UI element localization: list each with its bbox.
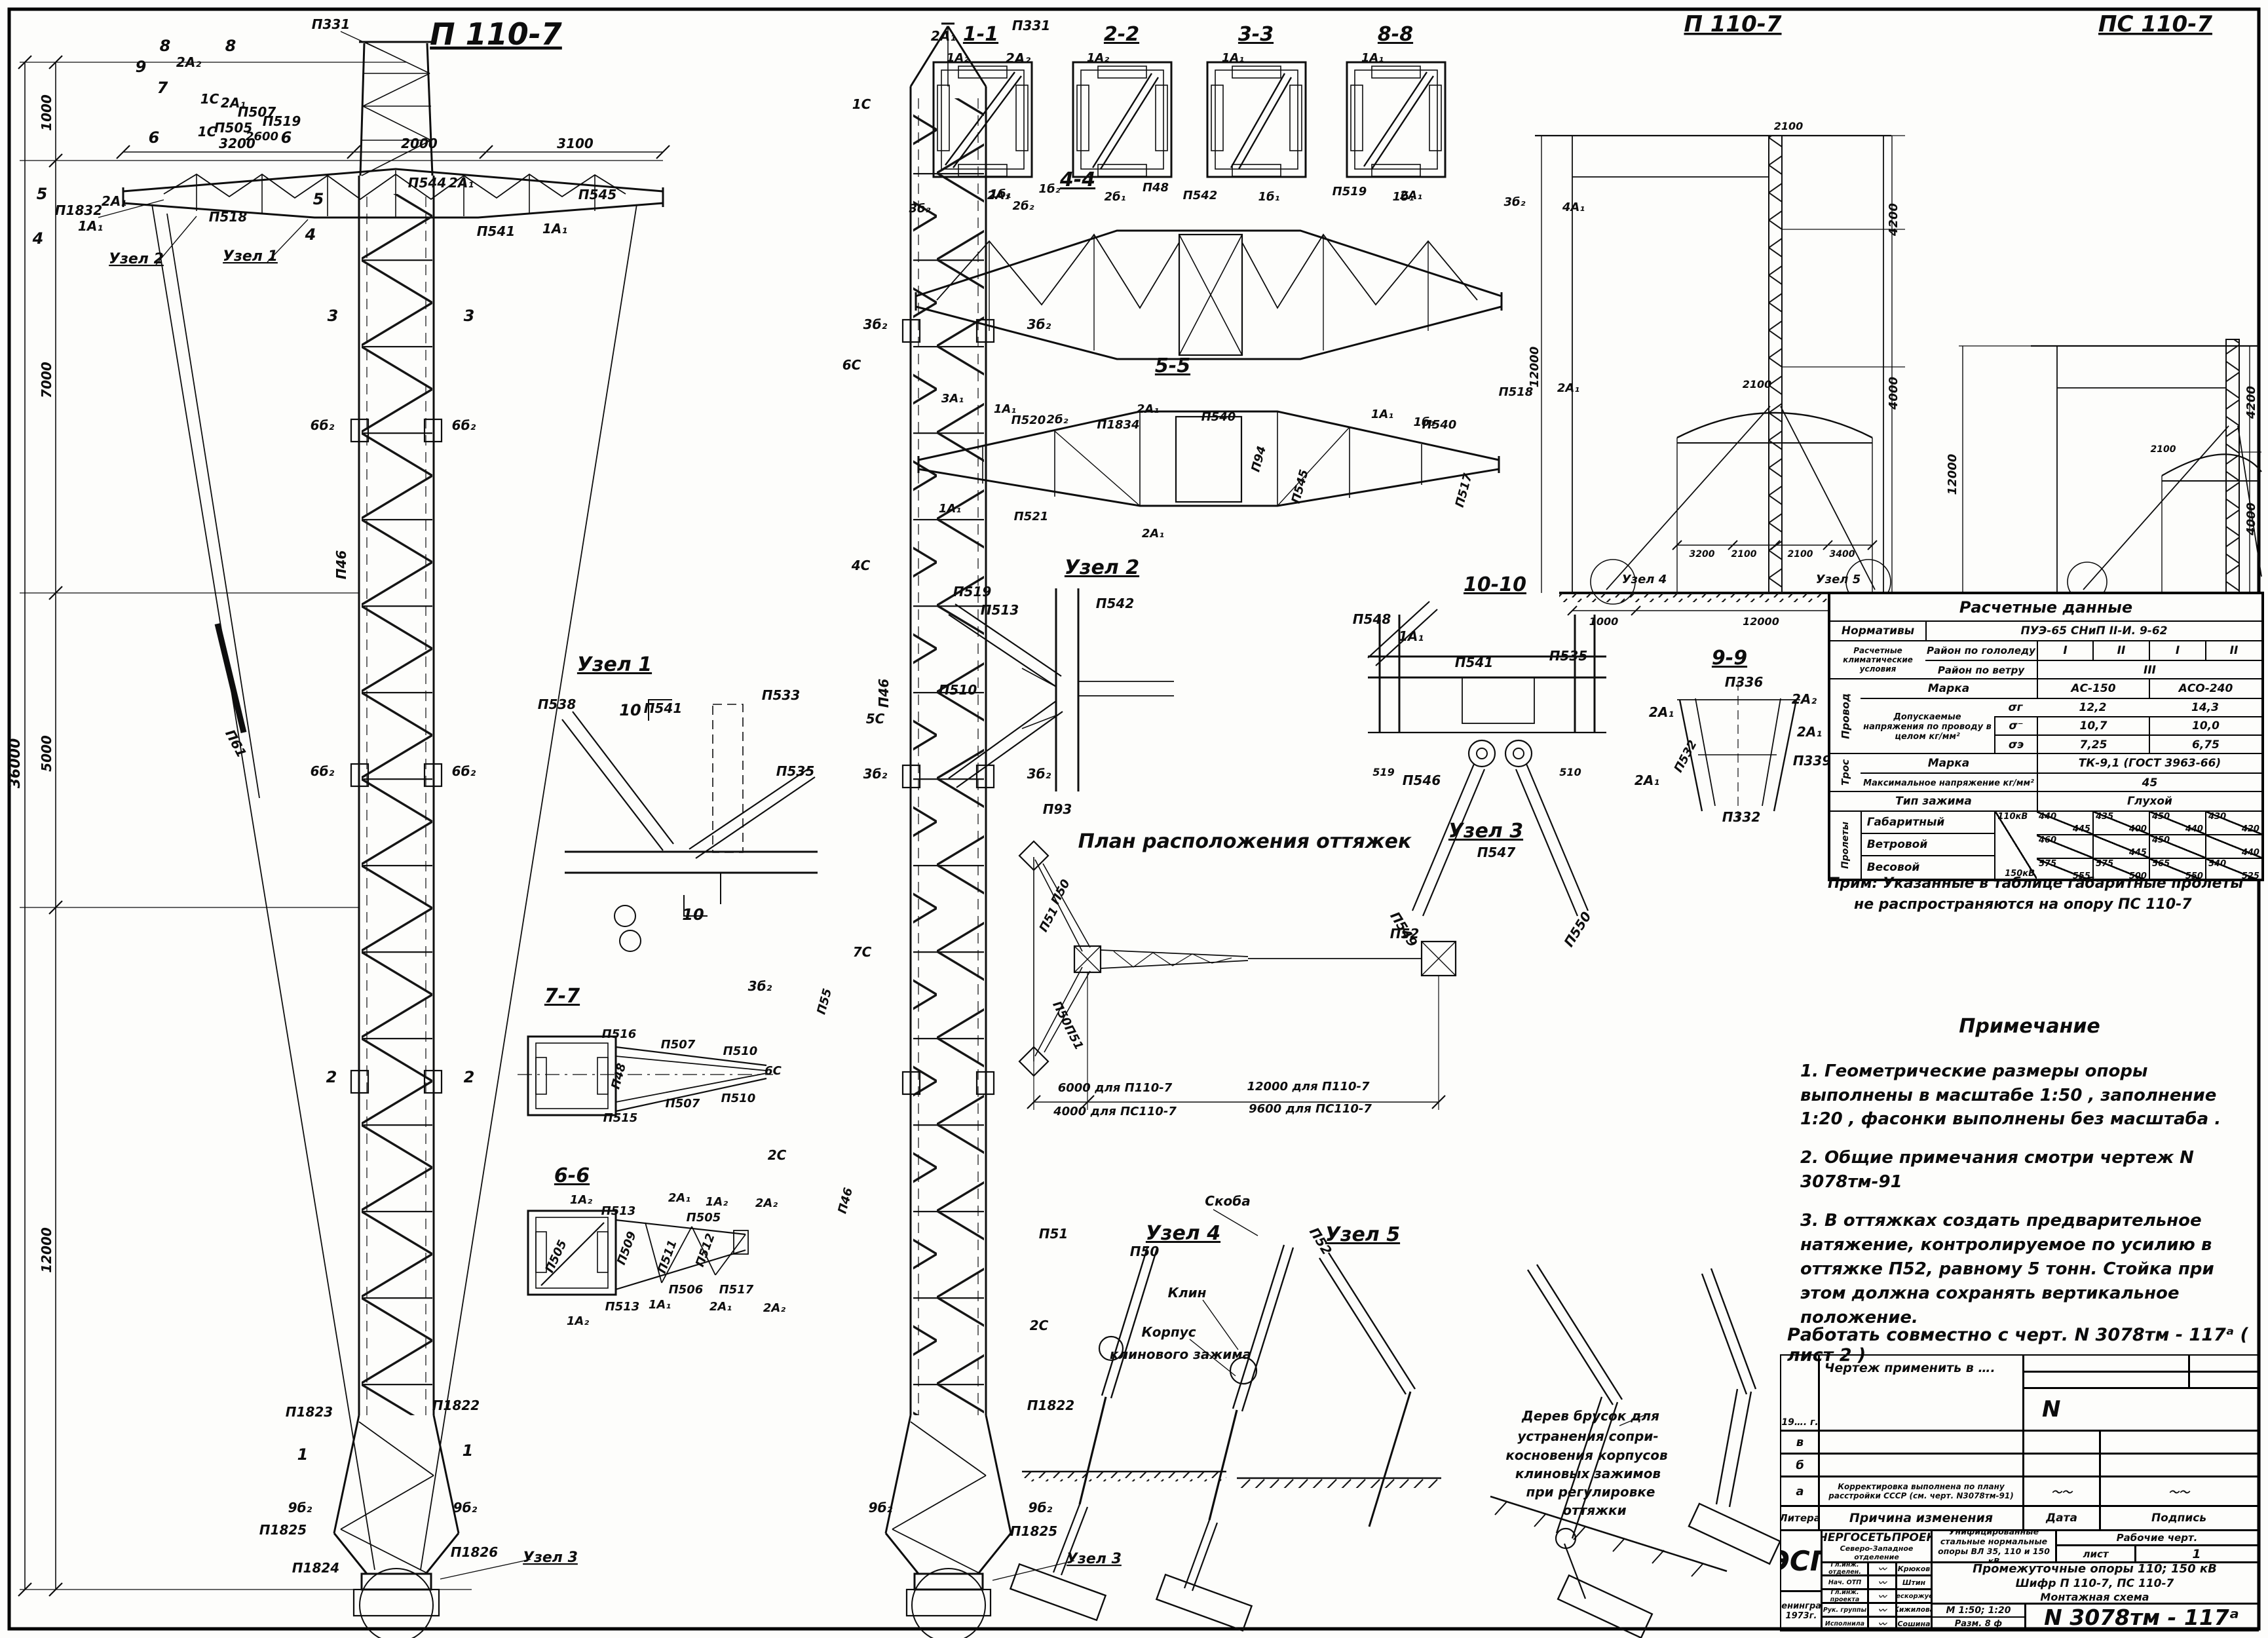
- svg-label: П51: [1061, 1023, 1086, 1052]
- svg-label: П517: [719, 1283, 754, 1297]
- svg-label: 3б₂: [909, 202, 931, 216]
- svg-label: 2А₁: [709, 1300, 732, 1314]
- svg-label: П535: [1549, 648, 1588, 664]
- sigma-label: Допускаемые напряжения по проводу в цело…: [1861, 699, 1994, 754]
- cell: 435: [2096, 812, 2113, 822]
- sheet-label: лист: [2055, 1544, 2136, 1563]
- svg-label: П50: [1130, 1244, 1160, 1259]
- sigma-v: 7,25: [2037, 736, 2149, 754]
- svg-label: П547: [1477, 845, 1516, 860]
- svg-label: 7: [157, 79, 168, 97]
- signer-role: Нач. ОТП: [1821, 1575, 1869, 1590]
- svg-label: 5-5: [1155, 354, 1190, 377]
- svg-label: П94: [1249, 444, 1269, 473]
- year-cell: 19…. г.: [1780, 1354, 1820, 1432]
- svg-label: П510: [723, 1044, 758, 1058]
- row-a: а: [1780, 1476, 1820, 1507]
- svg-label: П1834: [1097, 418, 1139, 432]
- svg-label: 2А₁: [1557, 381, 1579, 395]
- row-a-sign: 〜〜: [2099, 1476, 2259, 1507]
- svg-label: Узел 3: [1067, 1551, 1122, 1567]
- svg-label: 3б₂: [1027, 316, 1051, 332]
- table-note-line2: не распространяются на опору ПС 110-7: [1854, 896, 2192, 913]
- cell: 565: [2152, 859, 2170, 869]
- svg-label: косновения корпусов: [1505, 1447, 1667, 1463]
- svg-label: 6б₂: [311, 417, 335, 433]
- svg-label: 3: [328, 307, 339, 325]
- cell: 445: [2073, 824, 2090, 834]
- org-name: ЭНЕРГОСЕТЬПРОЕКТ: [1821, 1531, 1933, 1544]
- svg-label: 2-2: [1104, 23, 1139, 46]
- svg-label: П540: [1422, 418, 1457, 432]
- svg-label: П1825: [259, 1522, 307, 1538]
- marka-as: АС-150: [2037, 679, 2149, 698]
- svg-label: 36000: [7, 738, 24, 789]
- svg-label: при регулировке: [1526, 1484, 1655, 1500]
- svg-label: П519: [263, 113, 301, 129]
- sign-label: Подпись: [2099, 1505, 2259, 1531]
- prolet-label: Пролеты: [1830, 812, 1861, 879]
- svg-label: П535: [776, 763, 815, 779]
- svg-label: Узел 3: [1448, 820, 1523, 843]
- svg-label: П515: [603, 1111, 638, 1125]
- gololed-4: II: [2205, 641, 2261, 660]
- tb-cell: [2099, 1453, 2259, 1477]
- cell: 445: [2129, 848, 2147, 858]
- svg-label: 1А₁: [1222, 51, 1244, 65]
- table-note-line1: Прим: Указанные в таблице габаритные про…: [1828, 875, 2243, 892]
- svg-label: П46: [835, 1186, 856, 1215]
- signature: 〰: [1867, 1603, 1897, 1617]
- signer-role: Рук. группы: [1821, 1603, 1869, 1617]
- svg-label: П506: [669, 1283, 704, 1297]
- svg-label: 8: [160, 37, 171, 55]
- svg-label: П1822: [432, 1398, 480, 1413]
- svg-label: Корпус: [1141, 1324, 1196, 1340]
- svg-label: ПС 110-7: [2098, 11, 2212, 37]
- cell: 460: [2039, 835, 2056, 845]
- svg-label: 7000: [39, 362, 54, 398]
- svg-label: 6б₂: [452, 417, 476, 433]
- cell: 430: [2208, 812, 2226, 822]
- svg-label: 4: [305, 225, 316, 244]
- cell: 440: [2039, 812, 2056, 822]
- tb-cell: [2022, 1354, 2190, 1373]
- svg-label: 1А₁: [542, 221, 567, 237]
- svg-label: П48: [609, 1061, 629, 1090]
- sigma-v: 14,3: [2149, 699, 2261, 717]
- veter-label: Район по ветру: [1925, 661, 2037, 679]
- svg-label: 2600: [246, 130, 278, 143]
- svg-label: 12000: [39, 1227, 54, 1273]
- svg-label: План расположения оттяжек: [1078, 830, 1412, 853]
- notes-title: Примечание: [1800, 1013, 2259, 1041]
- svg-label: клинового зажима: [1110, 1346, 1251, 1362]
- tb-cell: [2022, 1371, 2190, 1389]
- svg-label: П505: [687, 1211, 721, 1225]
- svg-label: Узел 1: [577, 653, 652, 676]
- svg-label: 2: [464, 1068, 475, 1086]
- svg-label: 3б₂: [1027, 766, 1051, 782]
- signer-name: Штин: [1895, 1575, 1933, 1590]
- svg-label: П51: [1036, 905, 1061, 934]
- tros-marka: ТК-9,1 (ГОСТ 3963-66): [2037, 754, 2261, 772]
- svg-label: П533: [762, 687, 801, 703]
- svg-label: клиновых зажимов: [1515, 1466, 1661, 1481]
- svg-label: 4000: [1887, 377, 1900, 410]
- year2: 1973г.: [1786, 1611, 1817, 1621]
- svg-label: 1А₂: [1087, 51, 1109, 65]
- product-2: Шифр П 110-7, ПС 110-7: [2016, 1577, 2174, 1591]
- provod-label: Провод: [1830, 679, 1861, 753]
- svg-label: 5: [37, 185, 48, 203]
- gololed-label: Район по гололеду: [1925, 641, 2037, 660]
- cell: 525: [2242, 871, 2259, 881]
- svg-label: П1832: [55, 202, 102, 218]
- svg-label: 12000 для П110-7: [1247, 1080, 1370, 1094]
- svg-label: 2100: [1731, 549, 1757, 560]
- svg-label: 3100: [557, 136, 594, 151]
- svg-label: П332: [1722, 809, 1761, 825]
- note-item-2: 2. Общие примечания смотри чертеж N 3078…: [1800, 1146, 2259, 1194]
- svg-label: 4-4: [1059, 168, 1095, 191]
- svg-label: 2А₂: [763, 1301, 785, 1315]
- max-value: 45: [2037, 774, 2261, 792]
- sigma-v: 12,2: [2037, 699, 2149, 717]
- litera-label: Литера: [1780, 1505, 1820, 1531]
- svg-label: 2100: [1743, 378, 1772, 390]
- svg-label: 3б₂: [1504, 195, 1526, 209]
- svg-label: 6С: [842, 357, 861, 373]
- svg-label: 1А₁: [649, 1298, 671, 1312]
- svg-label: П331: [1012, 18, 1051, 33]
- svg-label: 1А₁: [1371, 408, 1393, 421]
- svg-label: П546: [1403, 772, 1441, 788]
- svg-label: П46: [876, 679, 892, 708]
- svg-label: П540: [1201, 410, 1236, 424]
- svg-label: Узел 1: [223, 248, 278, 265]
- svg-label: 4200: [1887, 203, 1900, 237]
- date-label: Дата: [2022, 1505, 2101, 1531]
- tros-marka-label: Марка: [1861, 754, 2037, 772]
- sigma-minus: σ⁻: [1994, 717, 2037, 736]
- svg-label: 2А₁: [668, 1191, 690, 1205]
- svg-label: 3б₂: [863, 316, 888, 332]
- svg-label: 1: [463, 1441, 474, 1460]
- calc-data-table: Расчетные данные Нормативы ПУЭ-65 СНиП I…: [1828, 592, 2264, 881]
- svg-label: 7-7: [544, 985, 580, 1008]
- svg-label: П55: [814, 987, 835, 1016]
- svg-label: П509: [614, 1230, 639, 1267]
- product-cell: Промежуточные опоры 110; 150 кВ Шифр П 1…: [1931, 1561, 2259, 1605]
- svg-label: 2А₂: [1792, 691, 1817, 707]
- svg-label: П516: [602, 1027, 637, 1041]
- svg-label: 4200: [2244, 386, 2258, 419]
- svg-label: П 110-7: [430, 16, 562, 52]
- svg-label: П550: [1560, 909, 1594, 949]
- span-name: Габаритный: [1862, 812, 1995, 834]
- svg-label: 6С: [765, 1064, 782, 1078]
- cell: 420: [2242, 824, 2259, 834]
- svg-label: 2А₂: [176, 54, 201, 70]
- svg-label: П513: [981, 602, 1019, 618]
- cell: 450: [2152, 812, 2170, 822]
- svg-label: 2000: [401, 136, 438, 151]
- notes-block: Примечание 1. Геометрические размеры опо…: [1800, 1013, 2259, 1330]
- signer-name: Нескоржуев: [1895, 1589, 1933, 1603]
- svg-label: П541: [644, 700, 683, 716]
- svg-label: 9600 для ПС110-7: [1249, 1102, 1372, 1116]
- svg-label: 3б₂: [748, 978, 772, 994]
- svg-label: П51: [1039, 1226, 1068, 1242]
- doc-number: N 3078тм - 117ᵃ: [2024, 1603, 2259, 1631]
- svg-label: 4: [32, 229, 44, 248]
- svg-label: устранения сопри-: [1517, 1428, 1658, 1444]
- svg-label: 2А₁: [1649, 704, 1674, 720]
- svg-label: Узел 3: [523, 1550, 578, 1566]
- marka-aso: АСО-240: [2149, 679, 2261, 698]
- cell: 440: [2242, 848, 2259, 858]
- normativy-value: ПУЭ-65 СНиП II-И. 9-62: [1925, 622, 2261, 640]
- svg-label: 6000 для П110-7: [1058, 1081, 1173, 1095]
- svg-label: 2100: [2151, 444, 2176, 455]
- tros-label: Трос: [1830, 754, 1861, 791]
- svg-label: 1б₁: [1258, 190, 1280, 204]
- signature: 〰: [1867, 1616, 1897, 1631]
- svg-label: 2С: [1030, 1318, 1049, 1333]
- svg-label: Дерев брусок для: [1521, 1408, 1659, 1424]
- svg-label: 2А₁: [1142, 527, 1164, 541]
- svg-label: 9б₂: [288, 1500, 312, 1515]
- svg-label: Клин: [1168, 1285, 1207, 1301]
- signer-name: Кижилова: [1895, 1603, 1933, 1617]
- svg-label: 1С: [200, 91, 219, 107]
- org-sub: Северо-Западное отделение: [1822, 1544, 1931, 1561]
- sigma-v: 6,75: [2149, 736, 2261, 754]
- svg-label: 2А₁: [449, 175, 474, 191]
- svg-label: П517: [1453, 472, 1475, 509]
- tb-cell: [2188, 1354, 2259, 1373]
- svg-label: П544: [408, 175, 447, 191]
- svg-label: 5С: [866, 711, 885, 727]
- scale-cell: М 1:50; 1:20: [1931, 1603, 2026, 1618]
- svg-label: П1825: [1010, 1523, 1057, 1539]
- tb-cell: [1818, 1430, 2024, 1455]
- sigma-v: 10,7: [2037, 717, 2149, 736]
- svg-label: Узел 2: [109, 251, 164, 267]
- svg-label: 12000: [1946, 454, 1959, 495]
- tb-cell: [2099, 1430, 2259, 1455]
- row-a-text: Корректировка выполнена по плану расстро…: [1818, 1476, 2024, 1507]
- svg-label: 9-9: [1712, 647, 1747, 670]
- svg-label: 2А₁: [1400, 189, 1422, 202]
- row-b: б: [1780, 1453, 1820, 1477]
- svg-label: 12000: [1528, 347, 1541, 388]
- normativy-label: Нормативы: [1830, 622, 1925, 640]
- svg-label: П507: [666, 1097, 700, 1111]
- cell: 575: [2039, 859, 2056, 869]
- sheet-no: 1: [2134, 1544, 2259, 1563]
- svg-label: 1А₂: [947, 51, 969, 65]
- svg-label: П1824: [292, 1560, 339, 1576]
- svg-label: П507: [661, 1038, 696, 1052]
- razm-cell: Разм. 8 ф: [1931, 1616, 2026, 1631]
- sigma-e: σэ: [1994, 736, 2037, 754]
- tb-cell: [1818, 1453, 2024, 1477]
- svg-label: 2: [326, 1068, 337, 1086]
- svg-label: 1С: [852, 96, 871, 112]
- svg-label: 3200: [1690, 549, 1715, 560]
- signer-name: Сошина: [1895, 1616, 1933, 1631]
- svg-label: 1: [297, 1445, 309, 1464]
- svg-label: 9б₂: [869, 1500, 893, 1515]
- cell: 440: [2185, 824, 2203, 834]
- svg-label: Узел 5: [1325, 1223, 1400, 1246]
- svg-label: 9: [136, 58, 147, 76]
- svg-label: 8-8: [1378, 23, 1413, 46]
- svg-label: 3: [464, 307, 475, 325]
- n-cell: N: [2022, 1387, 2259, 1432]
- svg-label: П339: [1793, 753, 1832, 769]
- note-item-3: 3. В оттяжках создать предварительное на…: [1800, 1209, 2259, 1330]
- kv-top: 110кВ: [1997, 812, 2028, 822]
- gololed-3: I: [2149, 641, 2205, 660]
- table-title: Расчетные данные: [1830, 594, 2261, 620]
- svg-label: П541: [477, 223, 516, 239]
- svg-label: П520: [1011, 413, 1046, 427]
- row-a-date: 〜〜: [2022, 1476, 2101, 1507]
- signature: 〰: [1867, 1561, 1897, 1576]
- svg-label: 2100: [1774, 120, 1804, 132]
- svg-label: 1000: [1589, 615, 1619, 628]
- gololed-1: I: [2037, 641, 2092, 660]
- zazhim-value: Глухой: [2037, 792, 2261, 810]
- svg-label: 10: [682, 905, 704, 924]
- svg-label: П1822: [1027, 1398, 1074, 1413]
- svg-label: 3400: [1830, 549, 1855, 560]
- svg-label: 9б₂: [1029, 1500, 1053, 1515]
- svg-label: 2б₂: [1013, 199, 1034, 213]
- svg-label: 1-1: [963, 23, 998, 46]
- svg-label: П336: [1725, 674, 1764, 690]
- svg-label: П52: [1390, 926, 1420, 942]
- svg-label: 2б₁: [1105, 190, 1126, 204]
- svg-label: 2А₁: [1635, 772, 1659, 788]
- svg-label: П1823: [286, 1404, 333, 1420]
- svg-label: 510: [1559, 766, 1581, 778]
- svg-label: 2100: [1788, 549, 1813, 560]
- marka-label: Марка: [1861, 679, 2037, 698]
- svg-label: 5000: [39, 735, 54, 772]
- svg-label: П513: [605, 1300, 640, 1314]
- svg-label: П542: [1183, 189, 1218, 202]
- svg-label: 2А₁: [987, 189, 1010, 202]
- svg-label: 10-10: [1464, 573, 1526, 596]
- cell: 400: [2129, 824, 2147, 834]
- svg-label: 4С: [851, 558, 871, 573]
- svg-label: 4000: [2244, 503, 2258, 536]
- gololed-2: II: [2092, 641, 2149, 660]
- product-3: Монтажная схема: [2040, 1591, 2149, 1604]
- svg-label: 4000 для ПС110-7: [1053, 1105, 1177, 1118]
- svg-label: 4А₁: [1562, 200, 1585, 214]
- svg-label: 6: [281, 128, 292, 147]
- signer-role: Гл.инж. проекта: [1821, 1589, 1869, 1603]
- svg-label: Узел 4: [1622, 573, 1667, 586]
- svg-label: П 110-7: [1684, 11, 1781, 37]
- svg-label: П48: [1143, 181, 1169, 195]
- svg-label: П538: [538, 696, 576, 712]
- svg-label: 2А₁: [1137, 402, 1159, 416]
- svg-label: Узел 4: [1146, 1222, 1220, 1245]
- series-1: Унифицированные: [1949, 1529, 2039, 1536]
- drawing-sheet: П 110-7П 110-7ПС 110-71-12-23-38-84-45-5…: [0, 0, 2268, 1638]
- cell: 540: [2208, 859, 2226, 869]
- svg-label: 10: [619, 701, 641, 719]
- span-name: Ветровой: [1862, 834, 1995, 856]
- svg-label: 2А₁: [102, 193, 126, 209]
- row-v: в: [1780, 1430, 1820, 1455]
- sigma-v: 10,0: [2149, 717, 2261, 736]
- svg-label: П532: [1672, 738, 1700, 774]
- veter-value: III: [2037, 661, 2261, 679]
- cell: 450: [2152, 835, 2170, 845]
- tb-cell: [2188, 1371, 2259, 1389]
- svg-label: 2А₁: [1797, 724, 1822, 740]
- svg-label: П518: [209, 209, 248, 225]
- svg-label: 2А₂: [755, 1196, 778, 1210]
- org-cell: ЭНЕРГОСЕТЬПРОЕКТ Северо-Западное отделен…: [1821, 1529, 1933, 1563]
- signer-role: Исполнила: [1821, 1616, 1869, 1631]
- svg-label: 2А₂: [1006, 50, 1030, 66]
- svg-label: П541: [1455, 655, 1494, 670]
- note-item-1: 1. Геометрические размеры опоры выполнен…: [1800, 1059, 2259, 1132]
- svg-label: 2А₁: [931, 28, 956, 44]
- svg-label: П510: [721, 1092, 756, 1105]
- svg-label: Узел 5: [1816, 573, 1861, 586]
- svg-label: 1000: [39, 94, 54, 131]
- svg-label: 3-3: [1238, 23, 1274, 46]
- signature: 〰: [1867, 1575, 1897, 1590]
- svg-label: Скоба: [1205, 1193, 1250, 1209]
- svg-label: 1А₁: [1399, 628, 1424, 644]
- signer-role: Гл.инж. отделен.: [1821, 1561, 1869, 1576]
- svg-label: 6б₂: [311, 763, 335, 779]
- svg-label: 1б₂: [1039, 182, 1061, 196]
- svg-label: 1А₁: [1361, 51, 1384, 65]
- svg-label: 9б₂: [453, 1500, 478, 1515]
- svg-label: 1А₁: [78, 218, 103, 234]
- org-abbr: ЭСП: [1780, 1529, 1823, 1592]
- svg-label: П519: [953, 584, 992, 600]
- city: Ленинград: [1780, 1601, 1823, 1611]
- svg-label: 3б₂: [863, 766, 888, 782]
- svg-label: 1А₁: [939, 502, 961, 516]
- svg-label: Узел 2: [1065, 556, 1139, 579]
- tb-cell: [2022, 1430, 2101, 1455]
- svg-label: 1А₂: [706, 1195, 728, 1209]
- series-cell: Унифицированные стальные нормальные опор…: [1931, 1529, 2057, 1563]
- svg-label: 6-6: [554, 1164, 590, 1187]
- svg-label: П331: [312, 16, 350, 32]
- climate-label: Расчетные климатические условия: [1830, 641, 1925, 678]
- signer-name: Крюков: [1895, 1561, 1933, 1576]
- svg-label: 519: [1372, 766, 1394, 778]
- svg-label: 3А₁: [941, 392, 964, 406]
- series-2: стальные нормальные: [1940, 1536, 2047, 1546]
- svg-label: 1А₂: [567, 1314, 589, 1328]
- signature: 〰: [1867, 1589, 1897, 1603]
